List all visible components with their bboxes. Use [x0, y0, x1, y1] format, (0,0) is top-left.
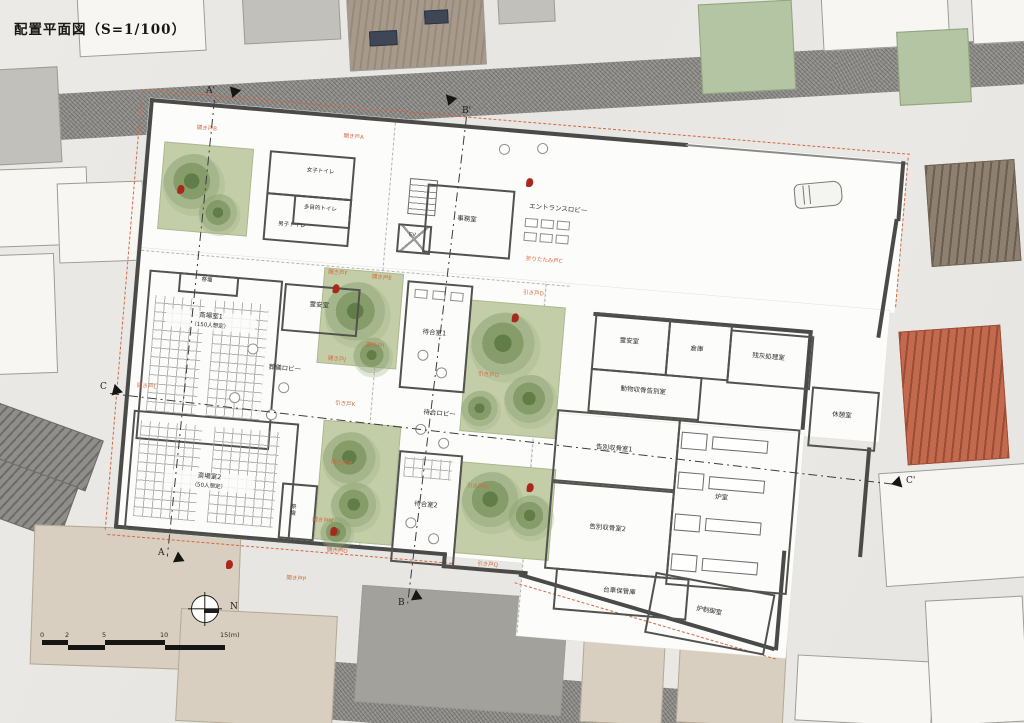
context-building: [898, 325, 1009, 466]
context-roof-unit: [369, 30, 398, 46]
door-label: 開き戸N: [312, 515, 333, 525]
door-label: 開き戸F: [328, 268, 348, 278]
context-building: [497, 0, 555, 24]
door-label: 引き戸H: [466, 481, 487, 491]
drawing-title: 配置平面図（S=1/100）: [14, 18, 186, 38]
sofa-icon: [556, 221, 570, 231]
context-building: [346, 0, 487, 72]
section-marker-a-top: A': [206, 86, 215, 96]
context-roof-unit: [424, 9, 449, 24]
context-building: [0, 66, 62, 165]
hall2-name: 斎場室2: [197, 471, 221, 481]
sofa-icon: [525, 218, 539, 228]
main-building: 女子トイレ 多目的トイレ 男子トイレ EV 事務室 エントランスロビー 祭壇 斎…: [106, 98, 913, 684]
context-building: [896, 28, 972, 106]
seating-grid: [403, 457, 453, 481]
door-label: 開き戸P: [286, 573, 306, 583]
hall2-capacity: （50人想定）: [191, 482, 226, 491]
section-marker-c-right: C': [906, 476, 915, 486]
context-building: [0, 253, 58, 375]
sofa-icon: [540, 219, 554, 229]
north-compass-icon: [191, 595, 219, 623]
door-label: 開き戸E: [372, 272, 393, 282]
sofa-icon: [539, 233, 553, 243]
door-label: 開き戸I: [366, 340, 385, 349]
context-building: [925, 596, 1024, 723]
scale-tick: 10: [160, 631, 168, 639]
door-label: 開き戸O: [327, 545, 348, 555]
sofa-icon: [414, 289, 428, 299]
hearse-car-icon: [793, 180, 843, 209]
door-label: 引き戸D: [523, 288, 544, 298]
door-label: 引き戸K: [335, 399, 356, 409]
sofa-icon: [555, 234, 569, 244]
section-marker-a-bottom: A: [158, 548, 165, 558]
wall: [858, 447, 871, 557]
altar2-niche: [278, 482, 319, 541]
context-building: [971, 0, 1024, 45]
door-label: 引き戸G: [478, 369, 499, 379]
section-marker-b-top: B': [462, 106, 471, 116]
scale-segment: [42, 640, 68, 645]
scale-tick: 2: [65, 631, 69, 639]
scale-segment: [105, 640, 165, 645]
door-label: 開き戸B: [196, 123, 217, 133]
door-label: 開き戸J: [328, 354, 347, 363]
door-label: 開き戸A: [343, 131, 364, 141]
sofa-icon: [523, 232, 537, 242]
scale-tick: 15(m): [220, 631, 240, 639]
site-plan-canvas: 女子トイレ 多目的トイレ 男子トイレ EV 事務室 エントランスロビー 祭壇 斎…: [0, 0, 1024, 723]
section-marker-b-bottom: B: [398, 598, 405, 608]
door-label: 開き戸M: [331, 457, 353, 467]
hall1-capacity: （150人想定）: [191, 321, 229, 330]
scale-tick: 5: [102, 631, 106, 639]
north-label: N: [230, 602, 238, 612]
context-building: [698, 0, 797, 94]
sofa-icon: [450, 292, 464, 302]
door-label: 引き戸Q: [477, 559, 498, 569]
hall1-name: 斎場室1: [199, 311, 223, 321]
scale-segment: [165, 645, 225, 650]
scale-segment: [68, 645, 105, 650]
scale-tick: 0: [40, 631, 44, 639]
scale-bar: 0 2 5 10 15(m): [42, 640, 237, 660]
compass-bar: [204, 609, 219, 613]
section-arrow-icon: [112, 384, 125, 398]
section-marker-c-left: C: [100, 382, 107, 392]
door-label: 開き戸L: [137, 381, 157, 391]
context-building: [925, 159, 1022, 267]
context-building: [242, 0, 342, 45]
room-mortuary1: [281, 283, 361, 337]
